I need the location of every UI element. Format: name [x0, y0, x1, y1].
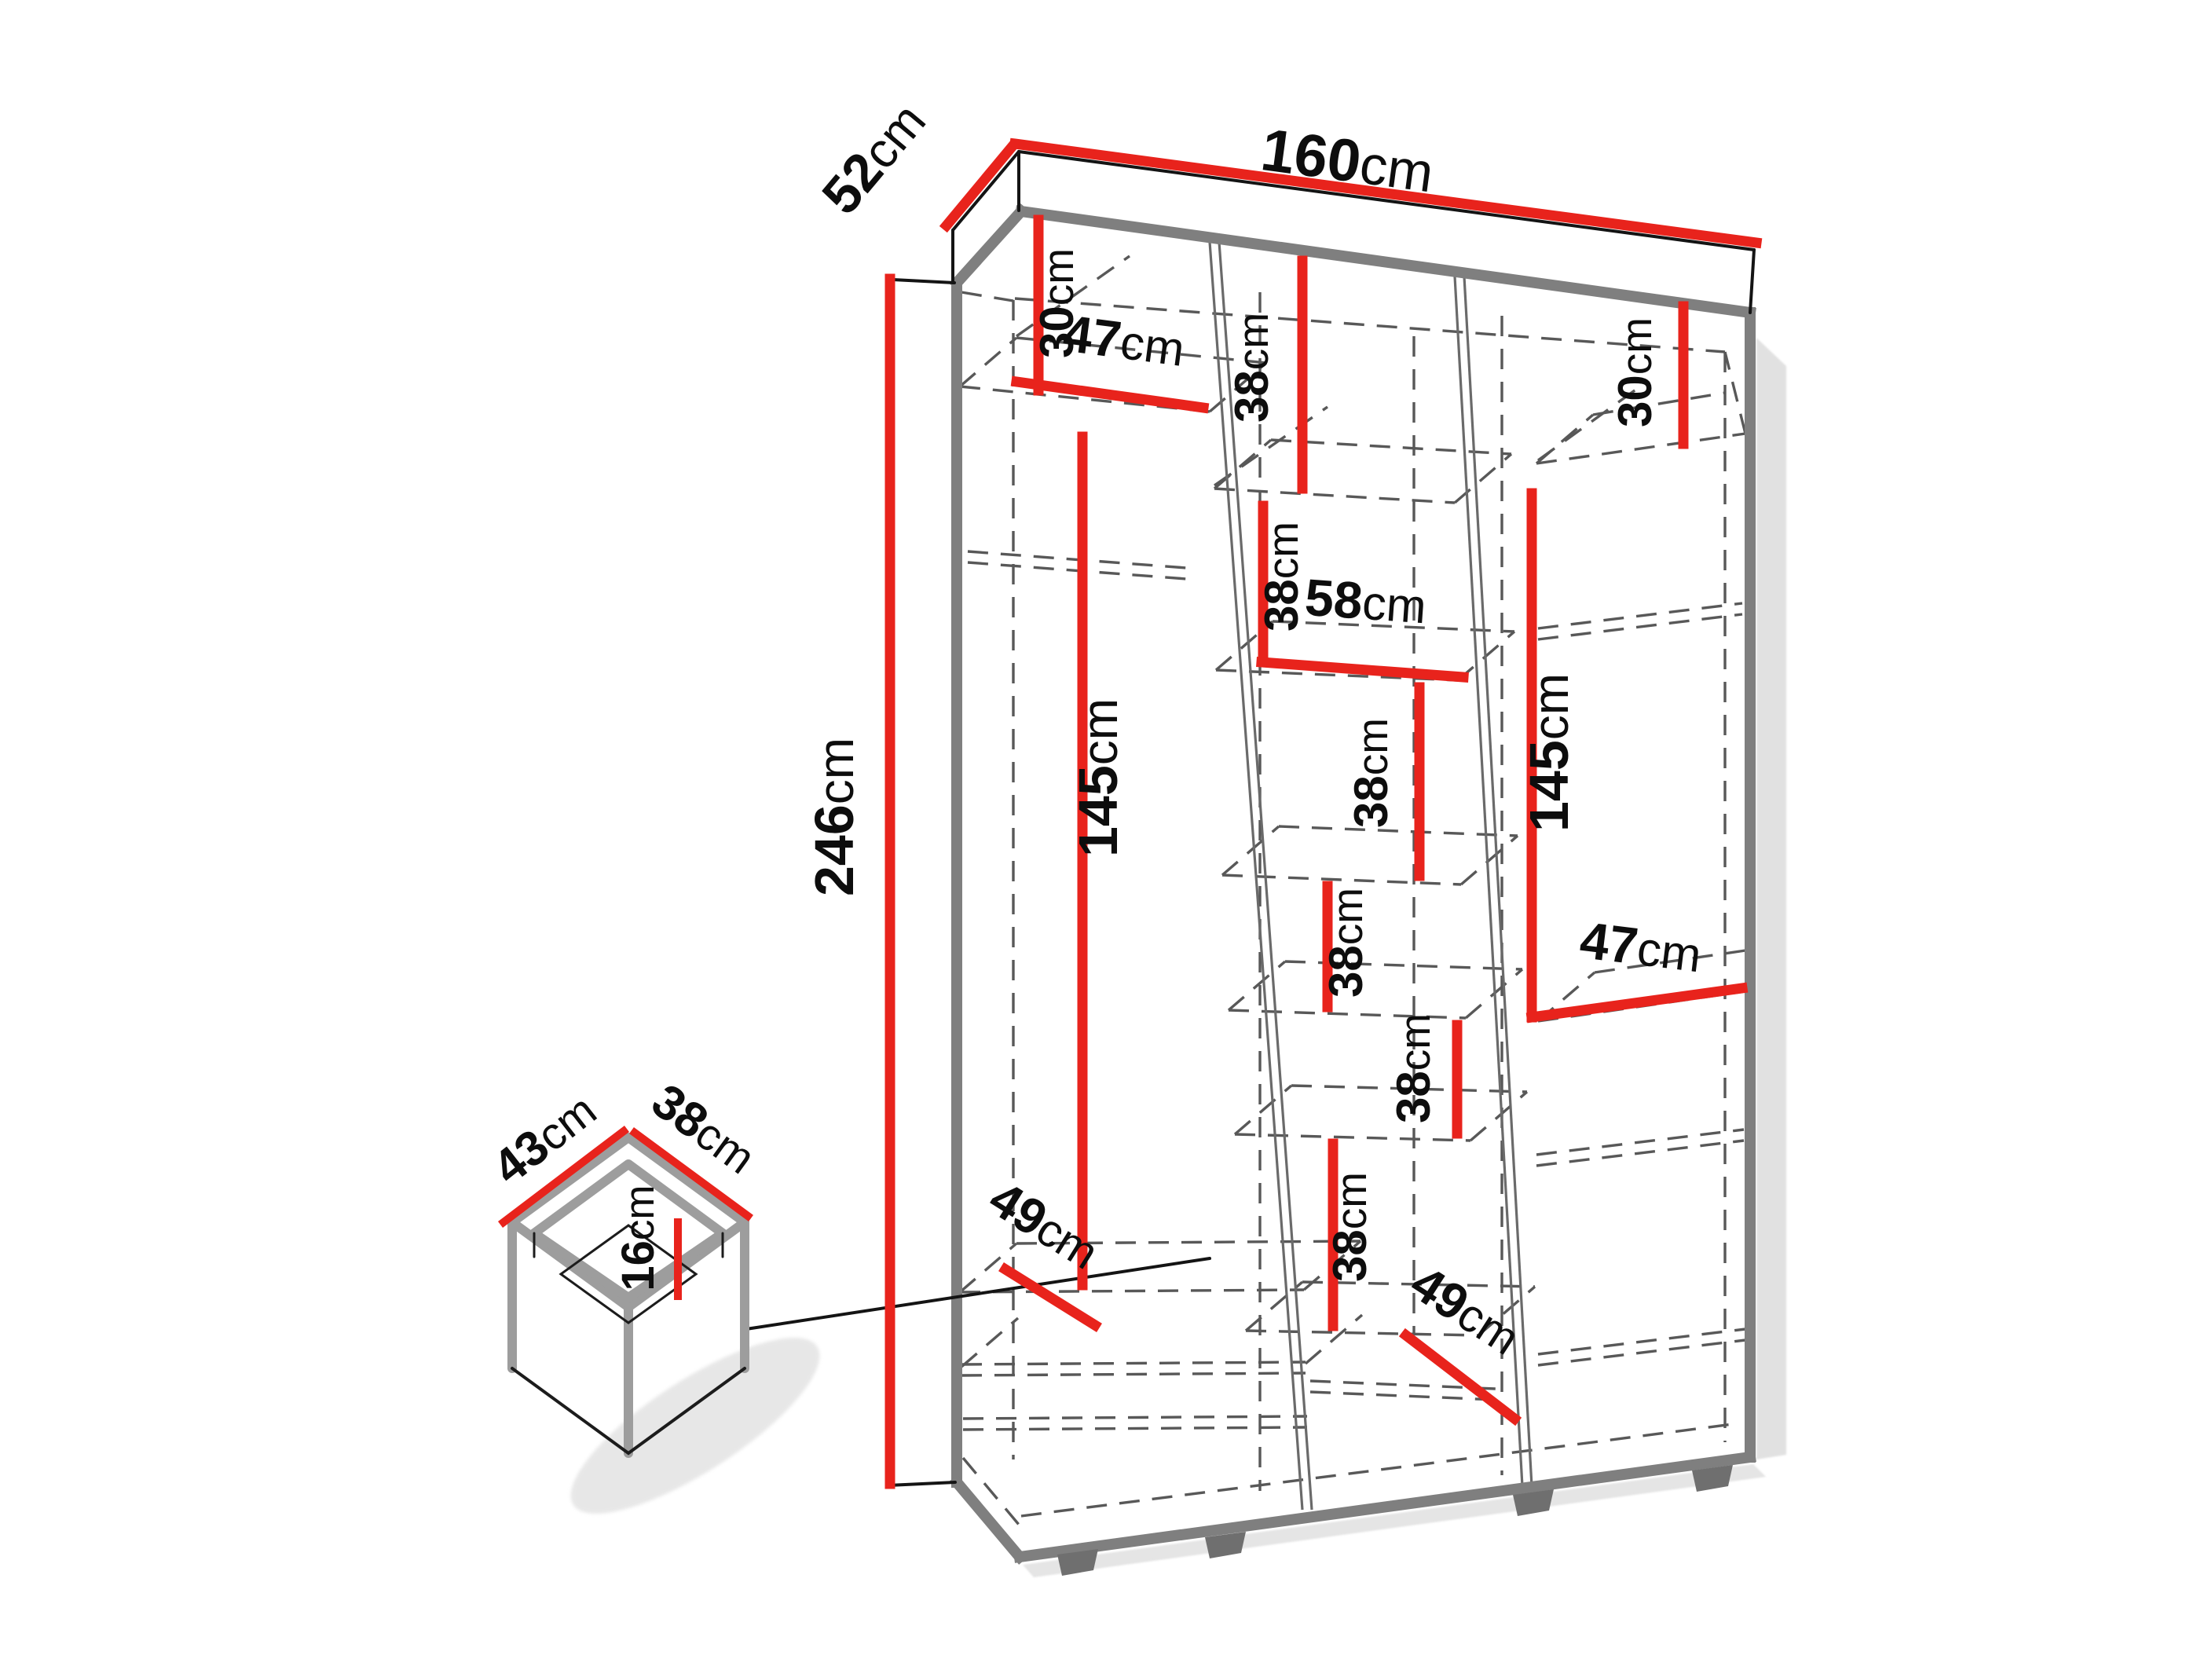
dim-label-mid-compartment-4-height: 38cm: [1320, 888, 1372, 998]
dim-label-mid-compartment-5-height: 38cm: [1387, 1013, 1440, 1123]
dim-line-mid-58: [1262, 662, 1463, 677]
dim-label-overall-height: 246cm: [804, 738, 865, 896]
dim-label-mid-compartment-3-height: 38cm: [1345, 718, 1397, 828]
dim-label-left-bottom-depth: 49cm: [980, 1170, 1109, 1280]
dim-label-mid-shelf-width: 58cm: [1303, 568, 1429, 635]
dim-label-overall-depth: 52cm: [811, 91, 937, 225]
dim-label-overall-width: 160cm: [1258, 116, 1437, 205]
dim-line-depth-52: [947, 146, 1013, 225]
drawer-callout-line: [746, 1258, 1210, 1329]
dim-label-left-hanging-height: 145cm: [1068, 698, 1129, 857]
dim-label-drawer-width: 38cm: [642, 1074, 766, 1185]
dim-label-mid-compartment-6-height: 38cm: [1324, 1172, 1376, 1282]
dim-label-right-hanging-height: 145cm: [1518, 673, 1580, 832]
diagram-page: 160cm52cm246cm30cm47cm145cm38cm38cm58cm3…: [0, 0, 2212, 1659]
dim-label-right-top-compartment-height: 30cm: [1609, 317, 1661, 427]
dim-label-left-shelf-width: 47cm: [1060, 303, 1188, 377]
wardrobe-dimension-diagram: 160cm52cm246cm30cm47cm145cm38cm38cm58cm3…: [0, 0, 2212, 1659]
dim-label-drawer-height: 16cm: [613, 1185, 664, 1291]
dim-label-mid-compartment-1-height: 38cm: [1225, 313, 1278, 423]
dim-line-right-47: [1532, 988, 1742, 1017]
dim-label-mid-compartment-2-height: 38cm: [1255, 522, 1308, 632]
dim-label-drawer-depth: 43cm: [483, 1082, 606, 1196]
